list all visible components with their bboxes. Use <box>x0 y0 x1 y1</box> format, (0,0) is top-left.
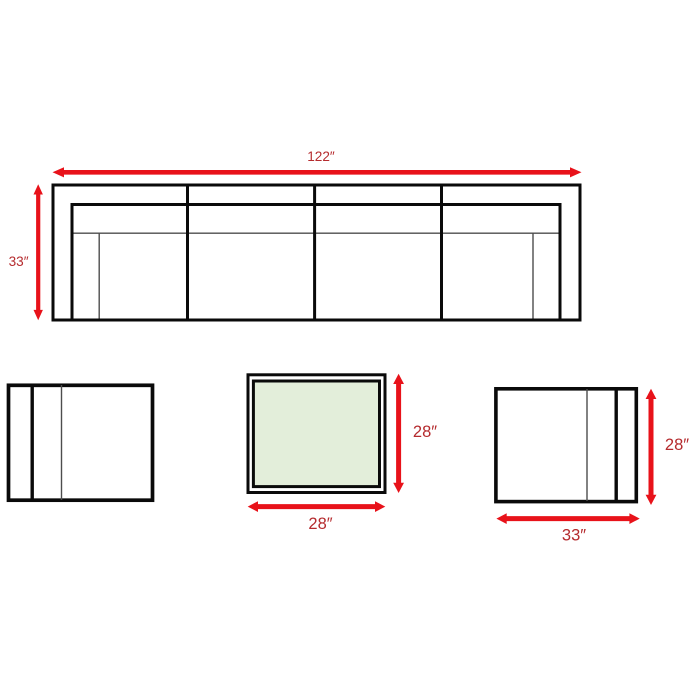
svg-text:28″: 28″ <box>413 423 437 441</box>
svg-text:33″: 33″ <box>9 254 29 269</box>
svg-text:28″: 28″ <box>308 515 332 533</box>
svg-text:122″: 122″ <box>307 149 335 164</box>
svg-text:33″: 33″ <box>562 526 586 544</box>
svg-text:28″: 28″ <box>665 436 689 454</box>
